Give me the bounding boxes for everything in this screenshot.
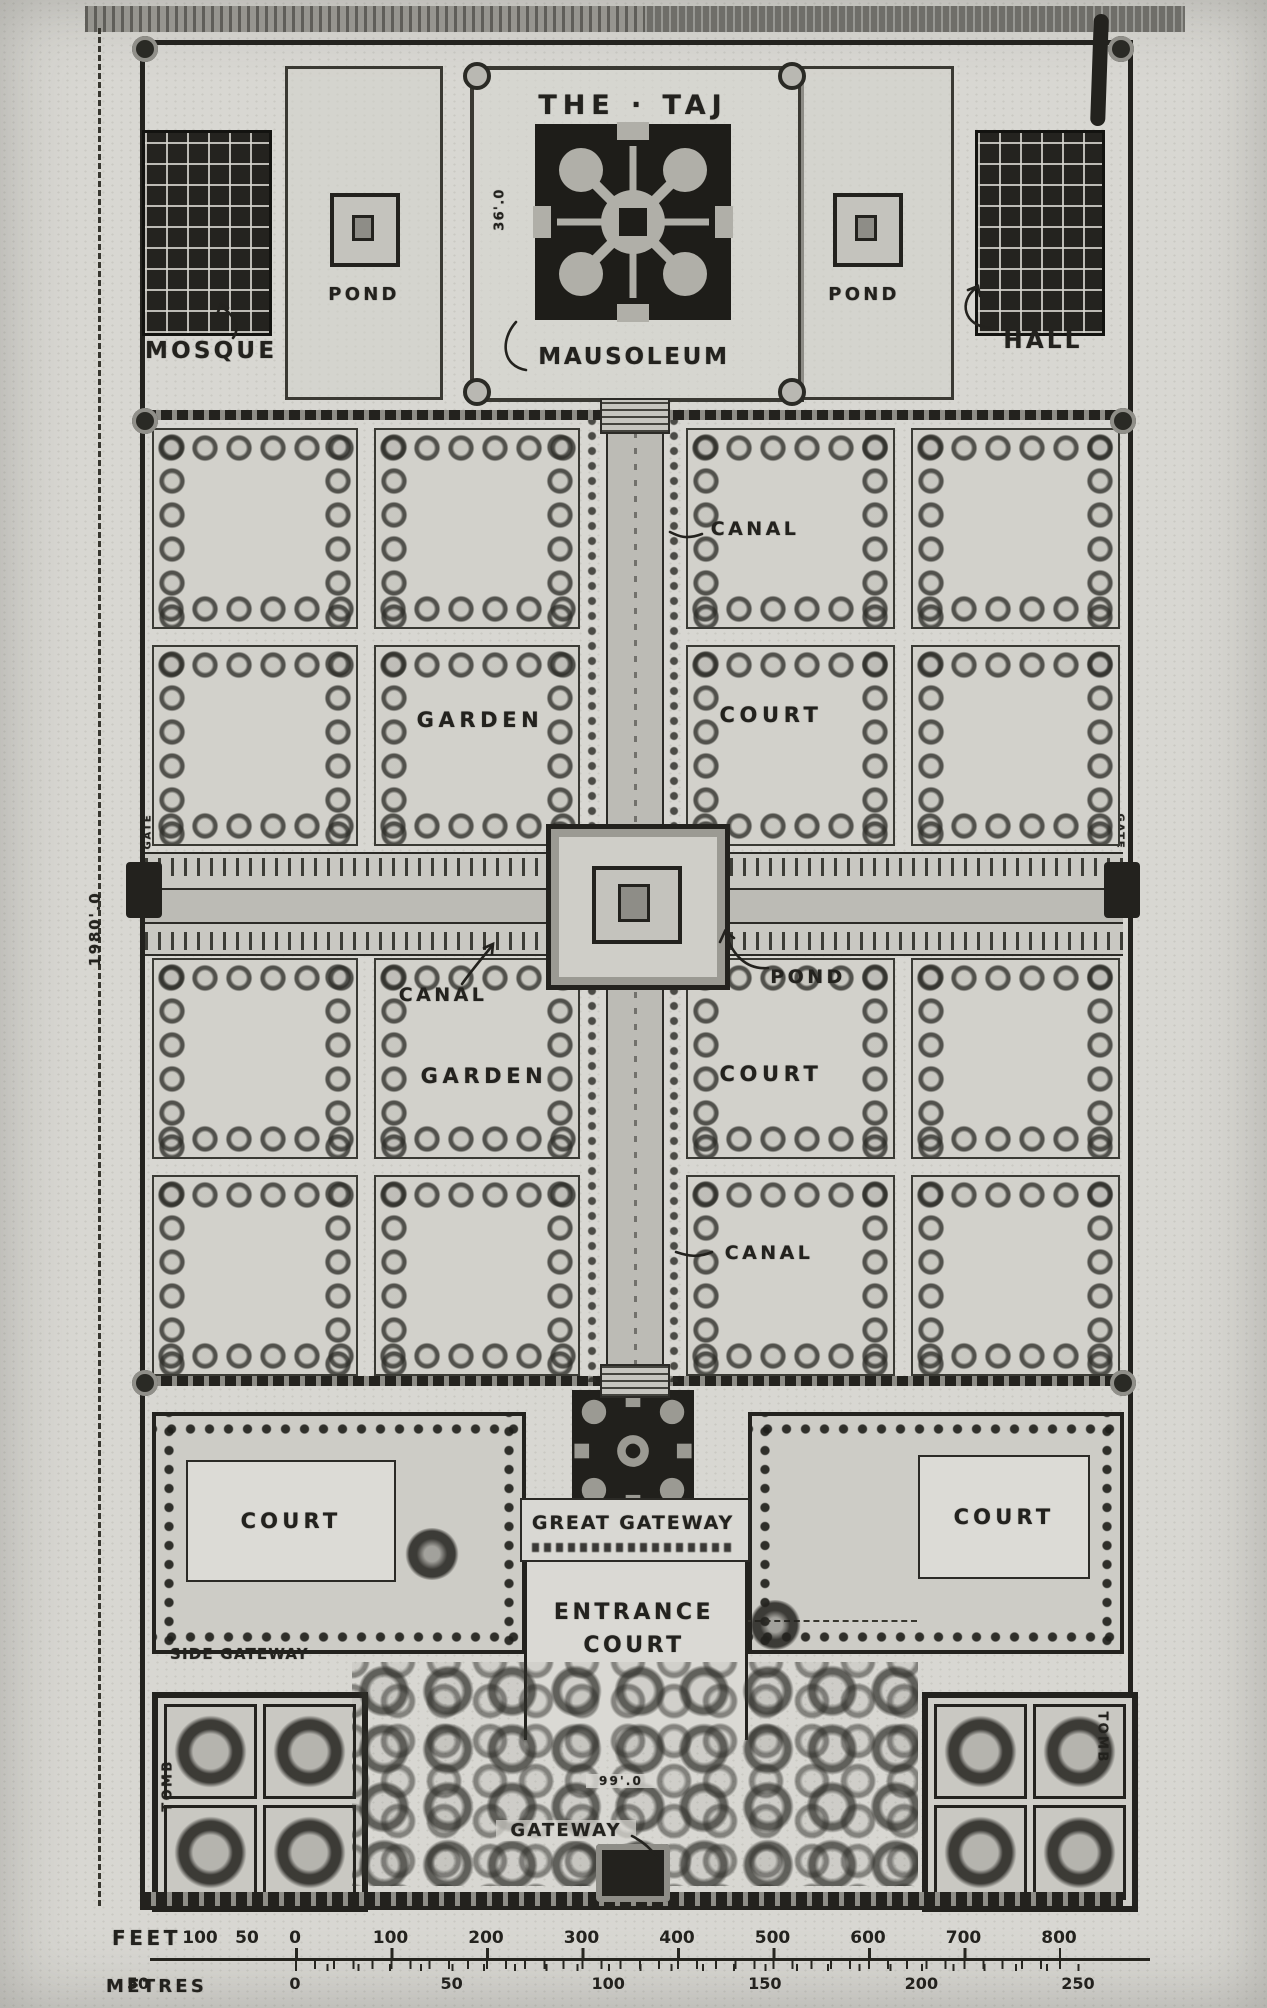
garden-parterre bbox=[152, 428, 358, 629]
terrace-steps bbox=[600, 398, 670, 434]
minaret-se bbox=[778, 378, 806, 406]
hall-leader-line bbox=[950, 280, 1006, 332]
garden-parterre bbox=[686, 645, 895, 846]
canal-south-leader-line bbox=[672, 1244, 716, 1262]
platform-width-dimension: 36'.0 bbox=[493, 165, 508, 255]
court-west-label: COURT bbox=[241, 1509, 342, 1533]
feet-tick-label: 100 bbox=[178, 1928, 222, 1948]
garden-parterre bbox=[374, 428, 580, 629]
garden-parterre bbox=[686, 1175, 895, 1376]
mosque-label: MOSQUE bbox=[145, 338, 285, 364]
feet-tick-label: 700 bbox=[924, 1928, 1004, 1948]
garden-parterre bbox=[911, 428, 1120, 629]
tomb-garden-west bbox=[152, 1692, 368, 1912]
garden-quadrant-nw bbox=[152, 428, 580, 846]
tomb-east-label: TOMB bbox=[1095, 1708, 1110, 1768]
minaret-ne bbox=[778, 62, 806, 90]
tomb-garden-cell bbox=[934, 1805, 1027, 1900]
tomb-garden-cell bbox=[263, 1704, 356, 1799]
mausoleum-label: MAUSOLEUM bbox=[528, 344, 740, 370]
mausoleum-plan bbox=[532, 122, 734, 322]
side-gateway-label: SIDE GATEWAY bbox=[170, 1645, 370, 1663]
mausoleum-leader-line bbox=[492, 318, 532, 374]
bastion-garden-ne bbox=[1110, 408, 1136, 434]
garden-parterre bbox=[152, 1175, 358, 1376]
metres-tick-label: 100 bbox=[568, 1974, 648, 1993]
metres-tick-label: 250 bbox=[1038, 1974, 1118, 1993]
metres-scale-pre-ticks: 50 bbox=[118, 1974, 158, 1993]
garden-parterre bbox=[374, 1175, 580, 1376]
pond-center-leader-line bbox=[716, 928, 772, 972]
bastion-garden-sw bbox=[132, 1370, 158, 1396]
metres-scale-main-ticks: 050100150200250 bbox=[255, 1974, 1118, 1993]
garden-upper-label: GARDEN bbox=[400, 708, 560, 732]
mosque-leader-line bbox=[215, 300, 255, 340]
bastion-garden-se bbox=[1110, 1370, 1136, 1396]
gateway-inscription-strip bbox=[532, 1543, 734, 1552]
metres-tick-label: 0 bbox=[255, 1974, 335, 1993]
garden-parterre bbox=[374, 645, 580, 846]
garden-parterre bbox=[911, 645, 1120, 846]
gateway-width-dimension: 99'.0 bbox=[586, 1774, 656, 1788]
tomb-garden-cell bbox=[934, 1704, 1027, 1799]
garden-south-steps bbox=[600, 1364, 670, 1398]
south-gateway-label: GATEWAY bbox=[496, 1820, 636, 1841]
feet-tick-label: 400 bbox=[637, 1928, 717, 1948]
feet-scale-main-ticks: 0100200300400500600700800 bbox=[255, 1928, 1099, 1948]
tomb-garden-cell bbox=[1033, 1805, 1126, 1900]
canal-north-leader-line bbox=[666, 524, 706, 544]
pond-west-center bbox=[352, 215, 374, 241]
minaret-nw bbox=[463, 62, 491, 90]
feet-tick-label: 200 bbox=[446, 1928, 526, 1948]
river-band-left bbox=[85, 6, 645, 32]
feet-tick-label: 300 bbox=[542, 1928, 622, 1948]
garden-quadrant-ne bbox=[686, 428, 1120, 846]
tomb-garden-cell bbox=[263, 1805, 356, 1900]
garden-lower-label: GARDEN bbox=[404, 1064, 564, 1088]
forecourt-west-court-box: COURT bbox=[186, 1460, 396, 1582]
feet-tick-label: 100 bbox=[351, 1928, 431, 1948]
tomb-west-label: TOMB bbox=[161, 1756, 176, 1816]
pond-east-label: POND bbox=[822, 284, 906, 305]
entrance-court-label: ENTRANCE COURT bbox=[548, 1596, 720, 1662]
east-wall-gate bbox=[1104, 862, 1140, 918]
taj-plan-sheet: 1980'.0 POND THE · TAJ 36'.0 POND MO bbox=[0, 0, 1267, 2008]
bastion-garden-nw bbox=[132, 408, 158, 434]
south-gateway-leader-line bbox=[628, 1828, 664, 1862]
metres-scale-ticks bbox=[295, 1964, 1080, 1971]
metres-tick-label: 150 bbox=[725, 1974, 805, 1993]
garden-quadrant-se bbox=[686, 958, 1120, 1376]
canal-north-label: CANAL bbox=[700, 518, 810, 540]
overall-length-dimension: 1980'.0 bbox=[86, 869, 104, 989]
feet-scale-major-ticks bbox=[295, 1948, 1061, 1958]
corner-turret-left bbox=[132, 36, 158, 62]
feet-tick-label: 600 bbox=[828, 1928, 908, 1948]
tomb-garden-cell bbox=[164, 1704, 257, 1799]
tomb-garden-cell bbox=[1033, 1704, 1126, 1799]
court-lower-label: COURT bbox=[706, 1062, 836, 1086]
forecourt-east-court-box: COURT bbox=[918, 1455, 1090, 1579]
garden-parterre bbox=[911, 1175, 1120, 1376]
garden-parterre bbox=[152, 958, 358, 1159]
pond-west-label: POND bbox=[322, 284, 406, 305]
metres-tick-label: 200 bbox=[881, 1974, 961, 1993]
canal-west-leader-line bbox=[452, 942, 496, 986]
west-wall-gate bbox=[126, 862, 162, 918]
tree-blob bbox=[404, 1528, 460, 1580]
feet-tick-label: 0 bbox=[255, 1928, 335, 1948]
garden-parterre bbox=[152, 645, 358, 846]
canal-south-label: CANAL bbox=[714, 1242, 824, 1264]
metres-tick-label: 50 bbox=[412, 1974, 492, 1993]
tree-blob bbox=[748, 1600, 802, 1650]
court-upper-label: COURT bbox=[706, 703, 836, 727]
great-gateway-label: GREAT GATEWAY bbox=[524, 1512, 742, 1534]
great-gateway-plan bbox=[546, 1390, 720, 1512]
pond-center-label: POND bbox=[758, 966, 858, 988]
court-east-label: COURT bbox=[954, 1505, 1055, 1529]
pond-east-center bbox=[855, 215, 877, 241]
canal-west-label: CANAL bbox=[388, 984, 498, 1006]
tomb-garden-cell bbox=[164, 1805, 257, 1900]
feet-tick-label: 800 bbox=[1019, 1928, 1099, 1948]
garden-parterre bbox=[911, 958, 1120, 1159]
plan-title: THE · TAJ bbox=[498, 90, 768, 121]
minaret-sw bbox=[463, 378, 491, 406]
feet-tick-label: 500 bbox=[733, 1928, 813, 1948]
garden-quadrant-sw bbox=[152, 958, 580, 1376]
metres-tick-label: 50 bbox=[118, 1974, 158, 1993]
central-pond-center bbox=[618, 884, 650, 922]
corner-turret-right bbox=[1108, 36, 1134, 62]
